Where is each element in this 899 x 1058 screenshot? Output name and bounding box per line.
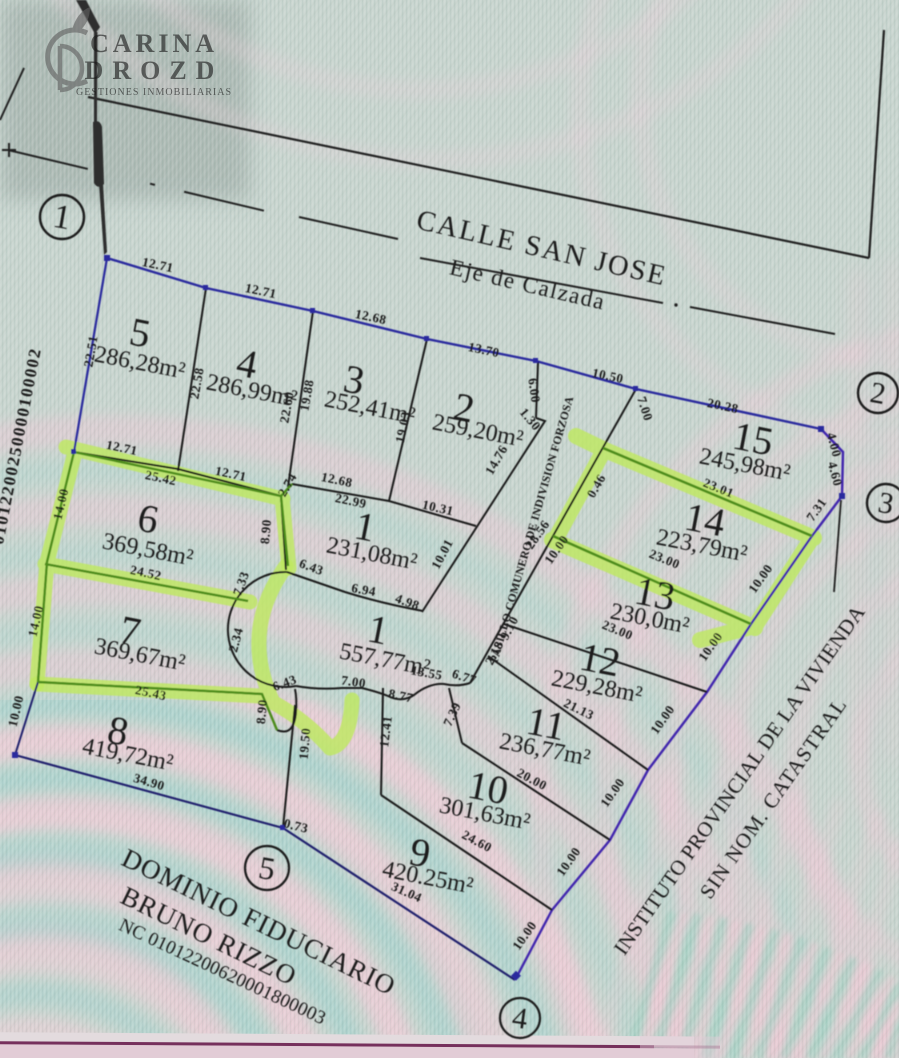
svg-text:DROZD: DROZD xyxy=(85,56,224,85)
svg-text:8.90: 8.90 xyxy=(257,519,274,545)
svg-text:8.90: 8.90 xyxy=(253,699,270,725)
svg-text:CARINA: CARINA xyxy=(90,29,218,58)
svg-text:GESTIONES INMOBILIARIAS: GESTIONES INMOBILIARIAS xyxy=(76,87,232,98)
svg-text:19.50: 19.50 xyxy=(296,727,314,760)
